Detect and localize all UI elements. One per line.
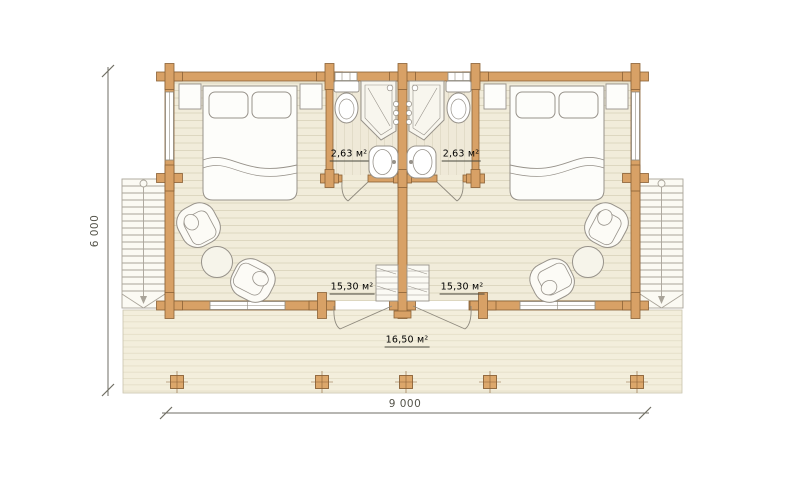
area-label-bedroom-left: 15,30 м² [330,282,375,295]
pillow [516,92,555,118]
toilet-right [446,81,471,123]
floor-plan-canvas: 2,63 м² 2,63 м² 15,30 м² 15,30 м² 16,50 … [0,0,800,490]
coffee-table [573,247,604,278]
window-right-wall [632,92,640,160]
washbasin-right [407,146,436,178]
window-left-wall [166,92,174,160]
area-label-bedroom-right: 15,30 м² [440,282,485,295]
coffee-table [202,247,233,278]
toilet-left [334,81,359,123]
staircase-right [640,179,683,308]
pillow [559,92,598,118]
pillow [252,92,291,118]
dimension-width-label: 9 000 [389,398,422,410]
window-bath-right [448,73,470,81]
window-bedroom-right [520,302,595,310]
pillow [209,92,248,118]
wall-party [398,72,407,318]
wardrobe-left [376,265,398,301]
staircase-left [122,179,165,308]
wardrobe-right [407,265,429,301]
dimension-depth-label: 6 000 [89,215,101,248]
area-label-bathroom-left: 2,63 м² [330,149,369,162]
washbasin-left [369,146,398,178]
area-label-bathroom-right: 2,63 м² [442,149,481,162]
bed-right [510,86,604,200]
window-bath-left [335,73,357,81]
window-bedroom-left [210,302,285,310]
area-label-terrace: 16,50 м² [385,335,430,348]
floor-plan-drawing [0,0,800,490]
dimension-line-vertical [102,65,114,396]
bed-left [203,86,297,200]
